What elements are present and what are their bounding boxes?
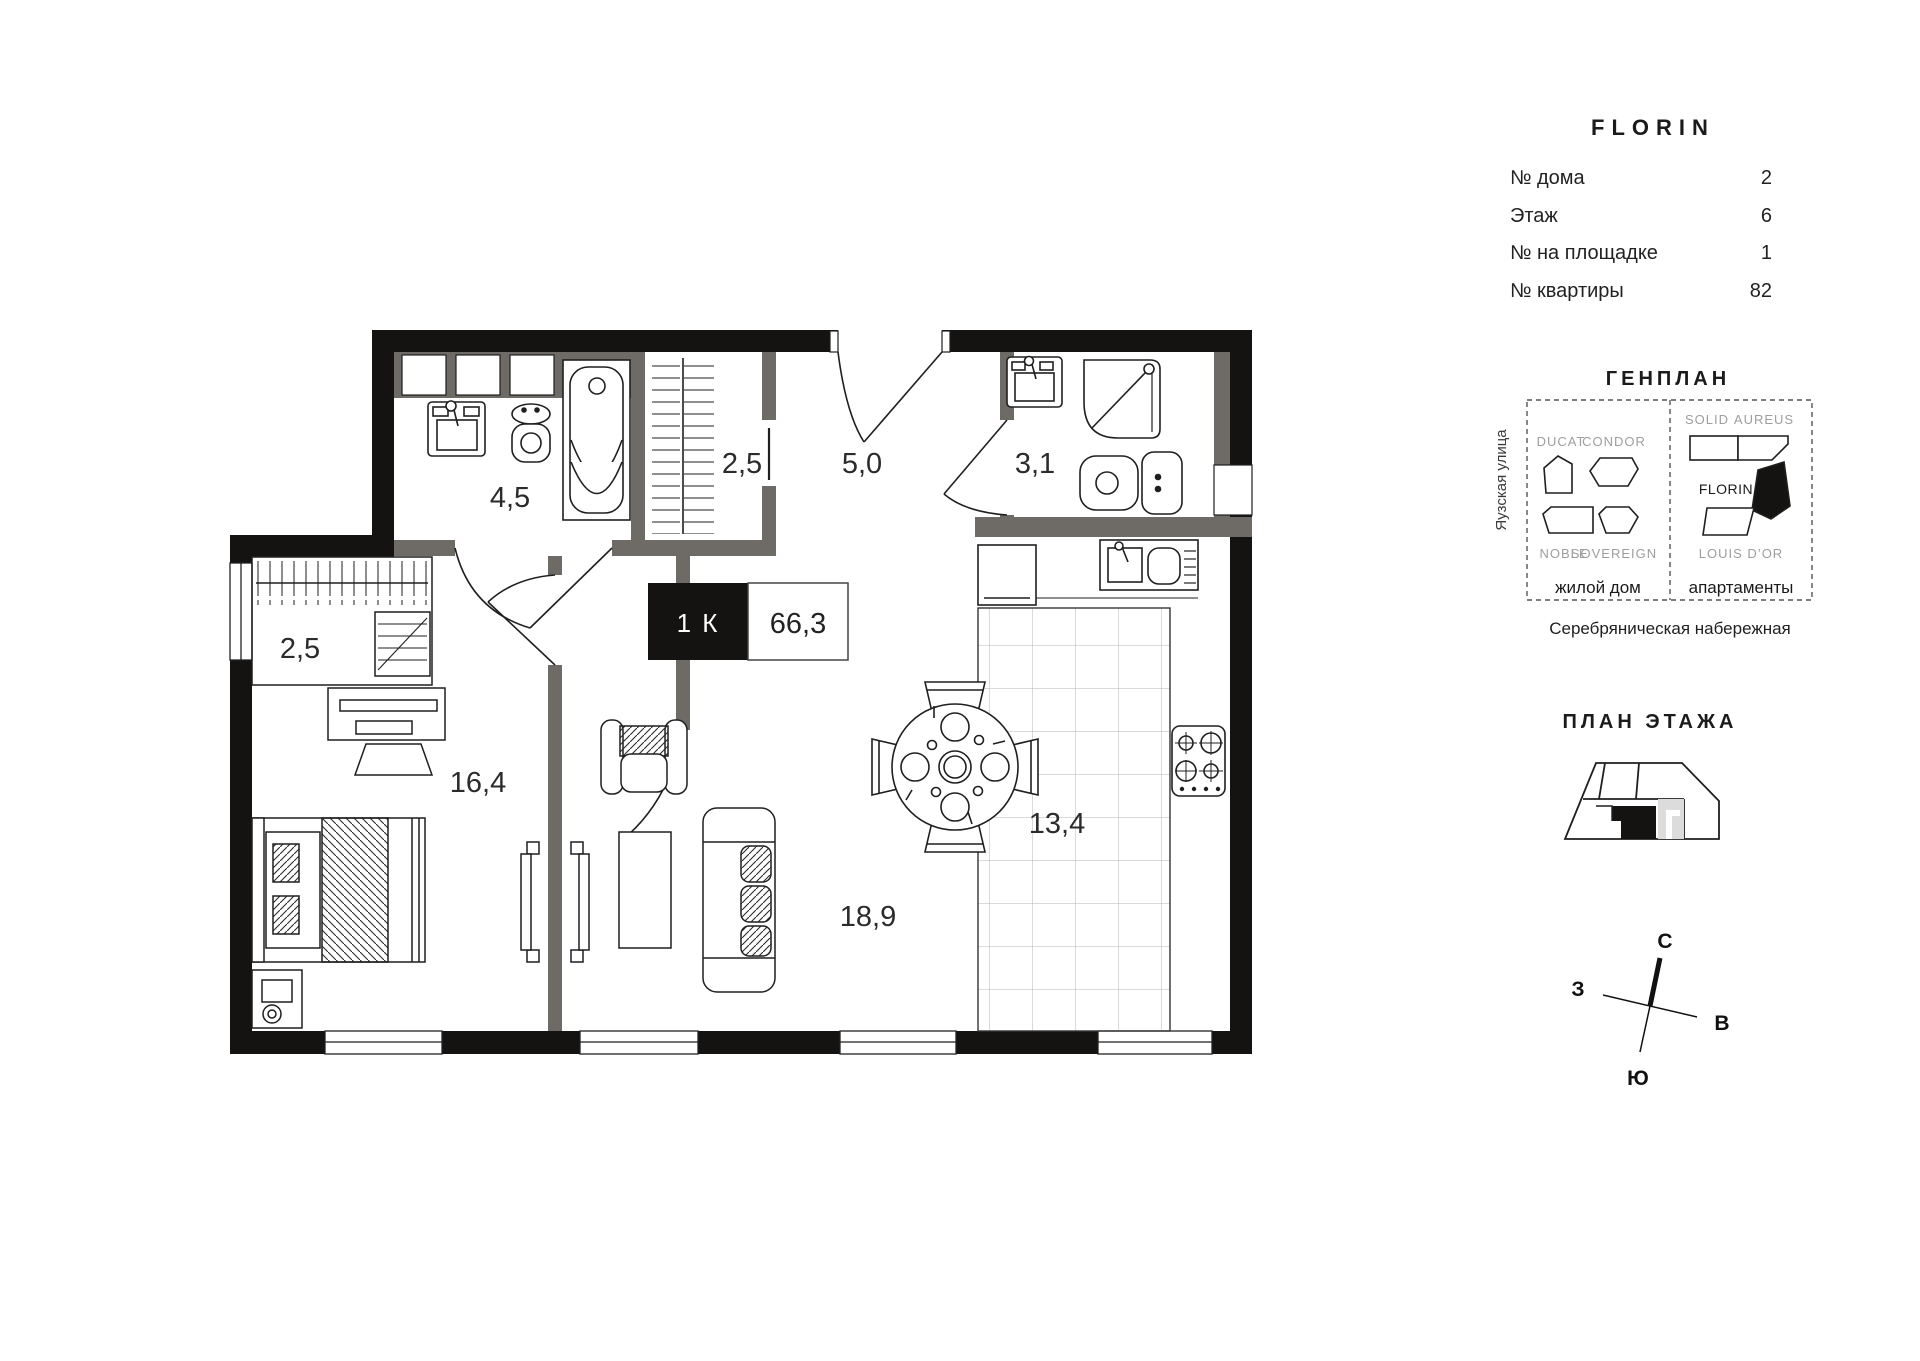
info-label: Этаж [1510, 205, 1558, 227]
shower-icon [1084, 360, 1160, 438]
living-furniture [571, 720, 775, 992]
bathroom-door-leaf [530, 548, 612, 628]
toilet-icon [1080, 452, 1182, 514]
building-label-louis: LOUIS D’OR [1699, 546, 1783, 561]
embankment-label: Серебряническая набережная [1549, 619, 1791, 638]
wardrobe-top [652, 358, 714, 534]
building-shape-solid [1690, 436, 1738, 460]
entrance-door-arc [838, 352, 864, 442]
unit-info-table: № дома 2 Этаж 6 № на площадке 1 № кварти… [1510, 167, 1772, 302]
building-shape-ducat [1544, 456, 1572, 493]
info-value: 6 [1761, 205, 1772, 227]
room-label-closet-left: 2,5 [280, 633, 320, 665]
compass-south-line [1640, 1006, 1650, 1052]
entrance-door-leaf [864, 352, 942, 442]
room-label-bedroom: 16,4 [450, 767, 506, 799]
building-shape-condor [1590, 458, 1638, 486]
bedroom-door-leaf [488, 602, 555, 665]
shower-room-door-arc [944, 494, 1007, 515]
room-label-bathroom: 4,5 [490, 482, 530, 514]
building-shape-noble [1543, 507, 1593, 533]
room-label-living: 18,9 [840, 901, 896, 933]
room-label-shower-room: 3,1 [1015, 448, 1055, 480]
building-label-condor: CONDOR [1582, 434, 1646, 449]
sink-icon [1007, 357, 1062, 408]
compass-east-label: В [1714, 1012, 1729, 1035]
floorplan-sheet: 4,5 2,5 5,0 3,1 2,5 16,4 18,9 13,4 1 К 6… [0, 0, 1920, 1361]
shower-room-fixtures [1007, 357, 1182, 515]
genplan-shapes-left [1543, 456, 1638, 533]
badge-area-value: 66,3 [770, 608, 826, 640]
room-label-closet-top: 2,5 [722, 448, 762, 480]
compass-west-label: З [1571, 978, 1584, 1001]
street-left-label: Яузская улица [1493, 429, 1510, 531]
building-shape-louis [1703, 508, 1754, 535]
dresser-tv-icon [328, 688, 445, 775]
nightstand-icon [252, 970, 302, 1028]
bed-icon [252, 818, 425, 962]
building-label-sovereign: SOVEREIGN [1571, 546, 1657, 561]
info-value: 82 [1750, 280, 1772, 302]
building-shape-sovereign [1599, 507, 1638, 533]
floor-plan-mini-diagram [1565, 763, 1719, 839]
apartment-badge: 1 К 66,3 [648, 583, 848, 660]
mini-highlighted-unit [1612, 806, 1656, 839]
compass: С З В Ю [1571, 930, 1729, 1090]
info-value: 1 [1761, 242, 1772, 264]
kitchen-sink-icon [1100, 540, 1198, 590]
sofa-icon [703, 808, 775, 992]
info-label: № квартиры [1510, 280, 1624, 302]
apartment-plan: 4,5 2,5 5,0 3,1 2,5 16,4 18,9 13,4 1 К 6… [230, 330, 1252, 1054]
info-label: № на площадке [1510, 242, 1658, 264]
bathroom-door-arc [455, 548, 530, 628]
coffee-table-icon [619, 832, 671, 948]
building-shape-aureus [1738, 436, 1788, 460]
sidebar: FLORIN № дома 2 Этаж 6 № на площадке 1 №… [1493, 115, 1812, 1090]
room-label-kitchen: 13,4 [1029, 808, 1085, 840]
genplan: ГЕНПЛАН DUCAT CONDOR NOBLE SOVEREIGN жил… [1493, 368, 1812, 638]
tv-living-icon [571, 842, 589, 962]
wardrobe-left [252, 557, 432, 685]
genplan-caption-apartments: апартаменты [1689, 578, 1794, 597]
genplan-caption-residential: жилой дом [1555, 578, 1641, 597]
table-icon [892, 704, 1018, 830]
project-title: FLORIN [1591, 115, 1715, 140]
badge-type-label: 1 К [677, 608, 720, 638]
compass-south-label: Ю [1627, 1067, 1649, 1090]
info-value: 2 [1761, 167, 1772, 189]
building-label-ducat: DUCAT [1537, 434, 1586, 449]
floor-plan-svg: 4,5 2,5 5,0 3,1 2,5 16,4 18,9 13,4 1 К 6… [0, 0, 1920, 1361]
building-shape-florin [1752, 462, 1790, 519]
genplan-title: ГЕНПЛАН [1606, 368, 1730, 390]
room-label-hallway: 5,0 [842, 448, 882, 480]
building-label-aureus: AUREUS [1734, 412, 1794, 427]
toilet-icon [512, 404, 550, 462]
compass-north-line [1650, 958, 1660, 1006]
fridge-icon [978, 545, 1036, 605]
tv-bedroom-icon [521, 842, 539, 962]
bedroom-door-arc [488, 575, 555, 602]
shower-room-door-leaf [944, 420, 1007, 494]
info-label: № дома [1510, 167, 1586, 189]
building-label-solid: SOLID [1685, 412, 1729, 427]
sink-icon [428, 401, 485, 456]
compass-north-label: С [1657, 930, 1672, 953]
floor-plan-title: ПЛАН ЭТАЖА [1563, 711, 1738, 733]
bathtub-icon [563, 360, 630, 520]
building-label-florin: FLORIN [1699, 481, 1753, 497]
stove-icon [1172, 726, 1225, 796]
floor-plan-mini: ПЛАН ЭТАЖА [1563, 711, 1738, 839]
armchair-icon [601, 720, 687, 794]
